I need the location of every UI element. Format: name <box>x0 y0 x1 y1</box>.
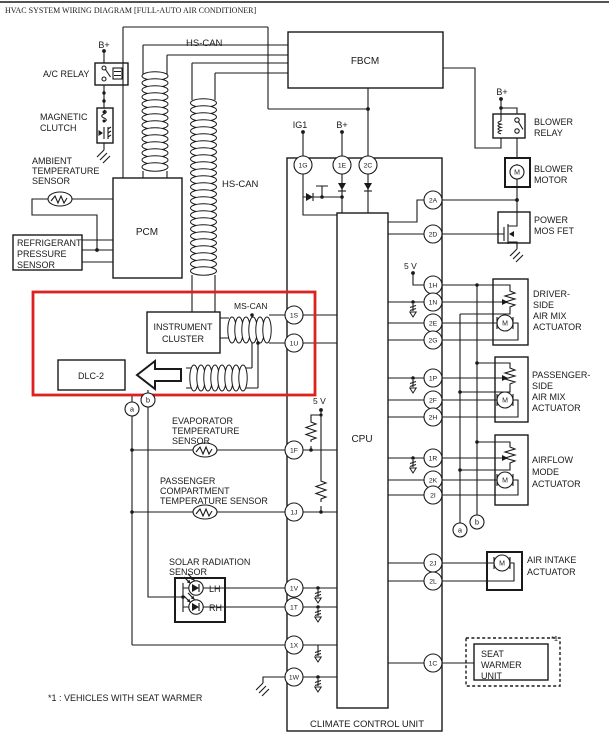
terminal-1f: 1F <box>290 447 298 454</box>
blower-relay-symbol <box>493 114 525 138</box>
ambient-temp-sensor-symbol <box>48 192 72 206</box>
v5-left-label: 5 V <box>313 396 326 406</box>
footnote-label: *1 : VEHICLES WITH SEAT WARMER <box>48 693 203 703</box>
terminal-2h: 2H <box>429 414 438 421</box>
hvac-wiring-diagram: HVAC SYSTEM WIRING DIAGRAM [FULL-AUTO AI… <box>0 0 609 750</box>
power-mosfet-label-2: MOS FET <box>534 226 575 236</box>
terminal-1g: 1G <box>298 162 307 169</box>
terminal-1h: 1H <box>429 282 438 289</box>
photodiode-rh-icon <box>189 600 203 614</box>
driver-actuator-label-4: ACTUATOR <box>533 322 582 332</box>
pullup-resistor-1j <box>316 479 326 502</box>
b-plus-climate-label: B+ <box>336 120 347 130</box>
terminal-2e: 2E <box>429 320 438 327</box>
wiring-diagram-page: HVAC SYSTEM WIRING DIAGRAM [FULL-AUTO AI… <box>0 0 609 750</box>
passenger-actuator-label-1: PASSENGER- <box>532 370 590 380</box>
air-intake-actuator-symbol <box>487 552 522 590</box>
passenger-actuator-label-2: SIDE <box>532 381 553 391</box>
terminal-2g: 2G <box>428 337 437 344</box>
airflow-actuator-label-2: MODE <box>532 467 559 477</box>
passenger-actuator-label-4: ACTUATOR <box>532 403 581 413</box>
terminal-1j: 1J <box>290 509 297 516</box>
passenger-compartment-temp-sensor-symbol <box>193 505 217 519</box>
seat-warmer-label-2: WARMER <box>481 660 522 670</box>
instrument-cluster-label-1: INSTRUMENT <box>154 322 213 332</box>
blower-motor-label-2: MOTOR <box>534 175 568 185</box>
wiper-arrow-1n <box>502 299 508 305</box>
blower-relay-label-1: BLOWER <box>534 117 574 127</box>
terminal-1n: 1N <box>429 299 438 306</box>
hs-can-top-label: HS-CAN <box>186 38 223 49</box>
evaporator-label-1: EVAPORATOR <box>172 416 234 426</box>
terminal-1w: 1W <box>289 674 300 681</box>
dlc2-arrow-icon <box>137 361 181 389</box>
hs-can-mid-label: HS-CAN <box>222 179 259 190</box>
refrigerant-label-3: SENSOR <box>17 260 56 270</box>
terminal-2a: 2A <box>429 197 438 204</box>
ground-icon-1w <box>256 683 269 696</box>
ig1-label: IG1 <box>293 120 308 130</box>
terminal-1s: 1S <box>290 312 299 319</box>
terminal-2l: 2L <box>429 578 437 585</box>
terminal-2k: 2K <box>429 477 438 484</box>
air-intake-motor-m: M <box>499 561 505 568</box>
signal-arrow-icons <box>315 304 416 692</box>
air-intake-label-1: AIR INTAKE <box>527 555 576 565</box>
driver-pot-resistor <box>505 289 515 309</box>
refrigerant-label-2: PRESSURE <box>17 249 67 259</box>
airflow-actuator-label-1: AIRFLOW <box>532 455 574 465</box>
solar-label-1: SOLAR RADIATION <box>169 557 250 567</box>
terminal-1u: 1U <box>290 340 299 347</box>
airflow-motor-m: M <box>502 478 508 485</box>
terminal-1r: 1R <box>429 455 438 462</box>
cpu-label: CPU <box>351 434 372 445</box>
instrument-cluster-box <box>147 312 220 353</box>
v5-right-label: 5 V <box>404 261 417 271</box>
evaporator-label-3: SENSOR <box>172 436 211 446</box>
terminal-1x: 1X <box>290 642 299 649</box>
photodiode-lh-icon <box>189 581 203 595</box>
text-labels: HS-CAN HS-CAN MS-CAN B+ IG1 B+ B+ 5 V 5 … <box>17 38 590 730</box>
connector-b-left: b <box>146 396 150 405</box>
passenger-actuator-label-3: AIR MIX <box>532 392 566 402</box>
ms-can-label: MS-CAN <box>234 301 268 311</box>
magnetic-clutch-label-1: MAGNETIC <box>40 112 88 122</box>
airflow-actuator-label-3: ACTUATOR <box>532 479 581 489</box>
fbcm-label: FBCM <box>351 56 379 67</box>
connector-b-right: b <box>475 518 479 527</box>
terminal-2j: 2J <box>429 560 436 567</box>
passenger-comp-label-2: COMPARTMENT <box>160 486 230 496</box>
hs-can-twisted-pair-2 <box>191 99 217 275</box>
seat-warmer-label-1: SEAT <box>481 649 504 659</box>
ac-relay-label: A/C RELAY <box>43 69 89 79</box>
b-plus-ac-relay-label: B+ <box>98 40 109 50</box>
terminal-2c: 2C <box>364 162 373 169</box>
terminal-1c: 1C <box>429 660 438 667</box>
wires <box>32 27 518 683</box>
airflow-pot-resistor <box>505 445 515 465</box>
terminal-1t: 1T <box>290 604 298 611</box>
ambient-label-3: SENSOR <box>32 176 71 186</box>
instrument-cluster-label-2: CLUSTER <box>162 334 205 344</box>
b-plus-blower-label: B+ <box>496 87 507 97</box>
dlc2-label: DLC-2 <box>78 371 104 381</box>
blower-motor-label-1: BLOWER <box>534 164 574 174</box>
power-mosfet-symbol <box>498 212 530 262</box>
solar-lh-label: LH <box>209 584 221 594</box>
dlc2-twisted-pair <box>190 365 247 391</box>
driver-actuator-label-3: AIR MIX <box>533 311 567 321</box>
ms-can-twisted-pair <box>228 317 271 343</box>
ambient-label-1: AMBIENT <box>32 156 73 166</box>
passenger-comp-label-1: PASSENGER <box>160 476 216 486</box>
pcm-label: PCM <box>136 227 158 238</box>
terminal-2f: 2F <box>429 397 437 404</box>
ambient-label-2: TEMPERATURE <box>32 166 99 176</box>
passenger-comp-label-3: TEMPERATURE SENSOR <box>160 496 268 506</box>
pullup-resistor-1f <box>306 420 316 442</box>
blower-relay-label-2: RELAY <box>534 128 563 138</box>
driver-actuator-label-1: DRIVER- <box>533 289 570 299</box>
passenger-motor-m: M <box>502 398 508 405</box>
terminal-2i: 2I <box>430 492 436 499</box>
terminal-1p: 1P <box>429 375 438 382</box>
cpu-box <box>337 213 388 708</box>
hs-can-twisted-pair-1 <box>142 72 168 171</box>
blower-motor-m: M <box>514 170 520 177</box>
passenger-pot-resistor <box>505 366 515 386</box>
magnetic-clutch-symbol <box>97 108 113 163</box>
solar-rh-label: RH <box>209 603 222 613</box>
solar-label-2: SENSOR <box>169 567 208 577</box>
seat-warmer-label-3: UNIT <box>481 671 502 681</box>
magnetic-clutch-label-2: CLUTCH <box>40 123 77 133</box>
driver-motor-m: M <box>502 321 508 328</box>
terminal-1e: 1E <box>338 162 347 169</box>
passenger-air-mix-actuator-symbol <box>495 357 528 422</box>
power-mosfet-label-1: POWER <box>534 215 569 225</box>
wiper-arrow-1r <box>502 455 508 461</box>
evaporator-label-2: TEMPERATURE <box>172 426 239 436</box>
climate-control-unit-label: CLIMATE CONTROL UNIT <box>310 719 424 730</box>
seat-warmer-ref-label: *1 <box>551 634 558 643</box>
driver-actuator-label-2: SIDE <box>533 300 554 310</box>
terminal-2d: 2D <box>429 231 438 238</box>
terminal-1v: 1V <box>290 585 299 592</box>
page-title: HVAC SYSTEM WIRING DIAGRAM [FULL-AUTO AI… <box>5 6 256 15</box>
air-intake-label-2: ACTUATOR <box>527 567 576 577</box>
input-protection-symbols <box>306 183 372 201</box>
refrigerant-label-1: REFRIGERANT <box>17 238 82 248</box>
